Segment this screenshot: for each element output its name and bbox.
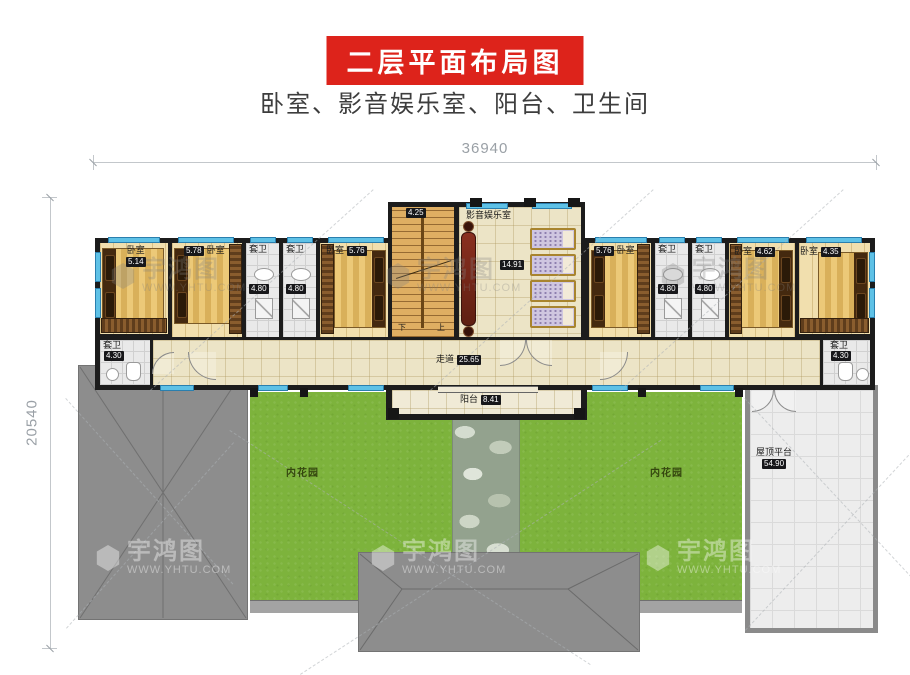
yhtu-logo-icon: [385, 263, 411, 289]
bedroom-2-label: 5.78卧室: [184, 246, 225, 256]
window: [806, 237, 862, 243]
suite-bath-2-label: 套卫: [286, 245, 304, 255]
dimension-line-top: [93, 162, 877, 163]
entertainment-room-area: 14.91: [500, 260, 524, 270]
sink: [106, 368, 119, 381]
sink: [291, 268, 311, 281]
column: [470, 198, 482, 207]
suite-bath-4-area: 4.80: [695, 284, 715, 294]
column: [568, 198, 580, 207]
wardrobe: [800, 318, 869, 333]
yhtu-logo-icon: [370, 545, 396, 571]
recliner-seat: [530, 280, 576, 302]
window: [160, 385, 194, 391]
watermark: 宇鸿图WWW.YHTU.COM: [95, 540, 231, 576]
wardrobe: [637, 244, 650, 334]
balcony-label: 阳台8.41: [460, 395, 501, 405]
corridor-floor: [153, 340, 820, 385]
window: [258, 385, 288, 391]
window: [737, 237, 789, 243]
page-title: 二层平面布局图: [327, 36, 584, 85]
bedroom-5-label: 卧室4.62: [734, 247, 775, 257]
console-knob: [463, 326, 474, 337]
window: [532, 203, 572, 209]
window: [595, 237, 647, 243]
column: [574, 408, 585, 419]
wardrobe: [321, 244, 334, 334]
dimension-line-left: [50, 197, 51, 649]
window: [700, 385, 734, 391]
bedroom-4-label: 5.76卧室: [594, 246, 635, 256]
window: [869, 288, 875, 318]
window: [95, 288, 101, 318]
lower-roof-left: [78, 365, 248, 620]
recliner-seat: [530, 306, 576, 328]
corner-bath-left-label: 套卫: [103, 341, 121, 351]
yhtu-logo-icon: [645, 545, 671, 571]
suite-bath-3-area: 4.80: [658, 284, 678, 294]
suite-bath-3-label: 套卫: [658, 245, 676, 255]
window: [696, 237, 722, 243]
dimension-height-value: 20540: [24, 383, 41, 463]
bed: [334, 250, 386, 328]
watermark: 宇鸿图WWW.YHTU.COM: [645, 540, 781, 576]
recliner-seat: [530, 228, 576, 250]
yhtu-logo-icon: [95, 545, 121, 571]
shower: [664, 298, 682, 319]
inner-garden-left-label: 内花园: [286, 464, 319, 479]
window: [108, 237, 160, 243]
corner-bath-left-area: 4.30: [104, 351, 124, 361]
sink: [254, 268, 274, 281]
watermark: 宇鸿图WWW.YHTU.COM: [370, 540, 506, 576]
watermark: 宇鸿图WWW.YHTU.COM: [660, 258, 796, 294]
wardrobe: [101, 318, 167, 333]
roof-terrace-area: 54.90: [762, 459, 786, 469]
window: [348, 385, 384, 391]
roof-terrace-label: 屋顶平台: [756, 448, 792, 458]
bedroom-6-label: 卧室4.35: [800, 247, 841, 257]
yhtu-logo-icon: [110, 263, 136, 289]
inner-garden-right-label: 内花园: [650, 464, 683, 479]
column: [638, 388, 646, 397]
dimension-width-value: 36940: [430, 140, 540, 157]
shower: [255, 298, 273, 319]
column: [250, 388, 258, 397]
window: [287, 237, 313, 243]
stair-down-label: 下: [398, 324, 406, 333]
console-knob: [463, 221, 474, 232]
suite-bath-1-area: 4.80: [249, 284, 269, 294]
toilet: [838, 362, 853, 381]
sink: [856, 368, 869, 381]
suite-bath-4-label: 套卫: [695, 245, 713, 255]
column: [524, 198, 536, 207]
column: [735, 388, 743, 397]
corridor-label: 走道25.65: [436, 355, 481, 365]
floorplan-page: 二层平面布局图 卧室、影音娱乐室、阳台、卫生间 36940 20540: [0, 0, 910, 675]
bedroom-3-label: 卧室5.76: [326, 246, 367, 256]
window: [328, 237, 384, 243]
balcony-sliding-door: [438, 386, 538, 393]
bedroom-1-label: 卧室5.14: [126, 246, 146, 267]
corner-bath-right-label: 套卫: [830, 341, 848, 351]
toilet: [126, 362, 141, 381]
corner-bath-right-area: 4.30: [831, 351, 851, 361]
column: [300, 388, 308, 397]
window: [869, 252, 875, 282]
bed: [818, 252, 868, 324]
stair-up-label: 上: [437, 324, 445, 333]
suite-bath-2-area: 4.80: [286, 284, 306, 294]
shower: [292, 298, 310, 319]
window: [659, 237, 685, 243]
window: [178, 237, 234, 243]
suite-bath-1-label: 套卫: [249, 245, 267, 255]
window: [95, 252, 101, 282]
page-subtitle: 卧室、影音娱乐室、阳台、卫生间: [0, 84, 910, 119]
window: [250, 237, 276, 243]
entertainment-room-label: 影音娱乐室: [466, 211, 511, 221]
stairwell-area: 4.25: [406, 208, 426, 218]
column: [388, 408, 399, 419]
